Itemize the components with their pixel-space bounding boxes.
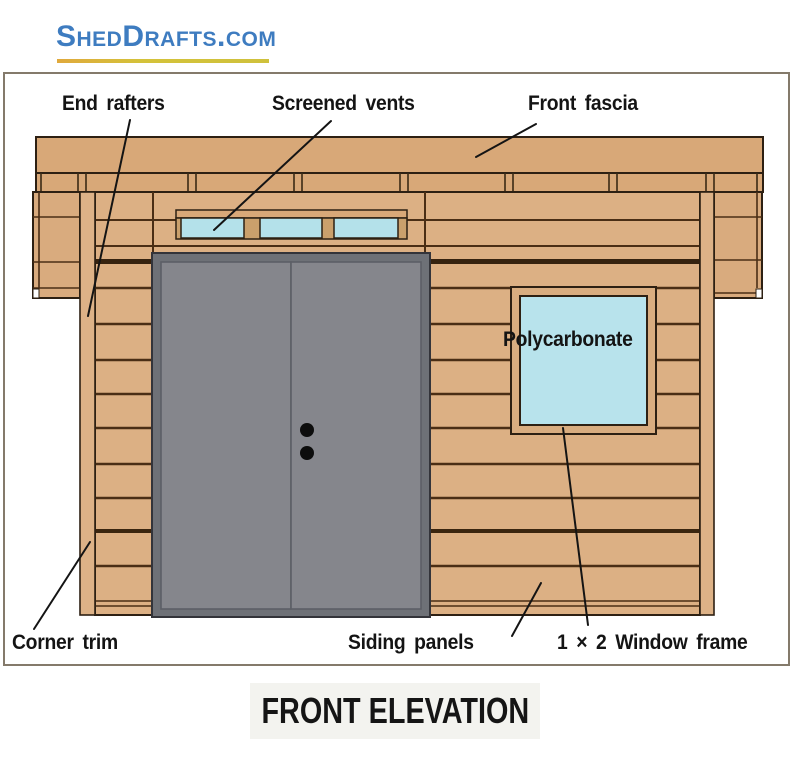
corner-trim-right xyxy=(700,192,714,615)
front-fascia-board xyxy=(36,137,763,173)
callout-polycarbonate: Polycarbonate xyxy=(503,328,633,352)
callout-corner-trim: Corner trim xyxy=(12,631,118,655)
end-rafter-right-notch xyxy=(756,289,762,298)
callout-end-rafters: End rafters xyxy=(62,92,165,116)
callout-window-frame: 1 × 2 Window frame xyxy=(557,631,747,655)
title-strip: FRONT ELEVATION xyxy=(250,683,540,739)
callout-screened-vents: Screened vents xyxy=(272,92,415,116)
door-leaf-left xyxy=(161,262,291,609)
corner-trim-left xyxy=(80,192,95,615)
vent-frame-top xyxy=(176,210,407,218)
callout-front-fascia: Front fascia xyxy=(528,92,638,116)
vent-pane-2 xyxy=(260,218,322,238)
shed-plan-page: ShedDrafts.com xyxy=(0,0,800,763)
end-rafter-right xyxy=(714,192,762,298)
window-glass xyxy=(520,296,647,425)
end-rafter-left-notch xyxy=(33,289,39,298)
drawing-title: FRONT ELEVATION xyxy=(261,690,529,732)
vent-pane-1 xyxy=(181,218,244,238)
door-hole-lower xyxy=(300,446,314,460)
vent-pane-3 xyxy=(334,218,398,238)
door-hole-upper xyxy=(300,423,314,437)
end-rafter-left xyxy=(33,192,80,298)
callout-siding-panels: Siding panels xyxy=(348,631,474,655)
